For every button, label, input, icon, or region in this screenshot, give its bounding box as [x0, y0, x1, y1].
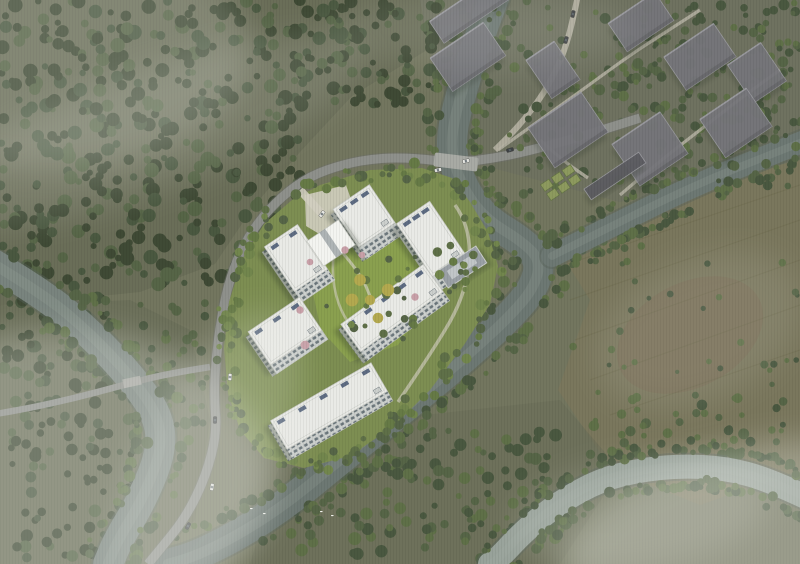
aerial-rendering: [0, 0, 800, 564]
white-bird: [331, 515, 334, 516]
rendering-stage: [0, 0, 800, 564]
white-bird: [250, 508, 253, 509]
white-bird: [263, 513, 266, 514]
white-bird: [320, 511, 323, 512]
